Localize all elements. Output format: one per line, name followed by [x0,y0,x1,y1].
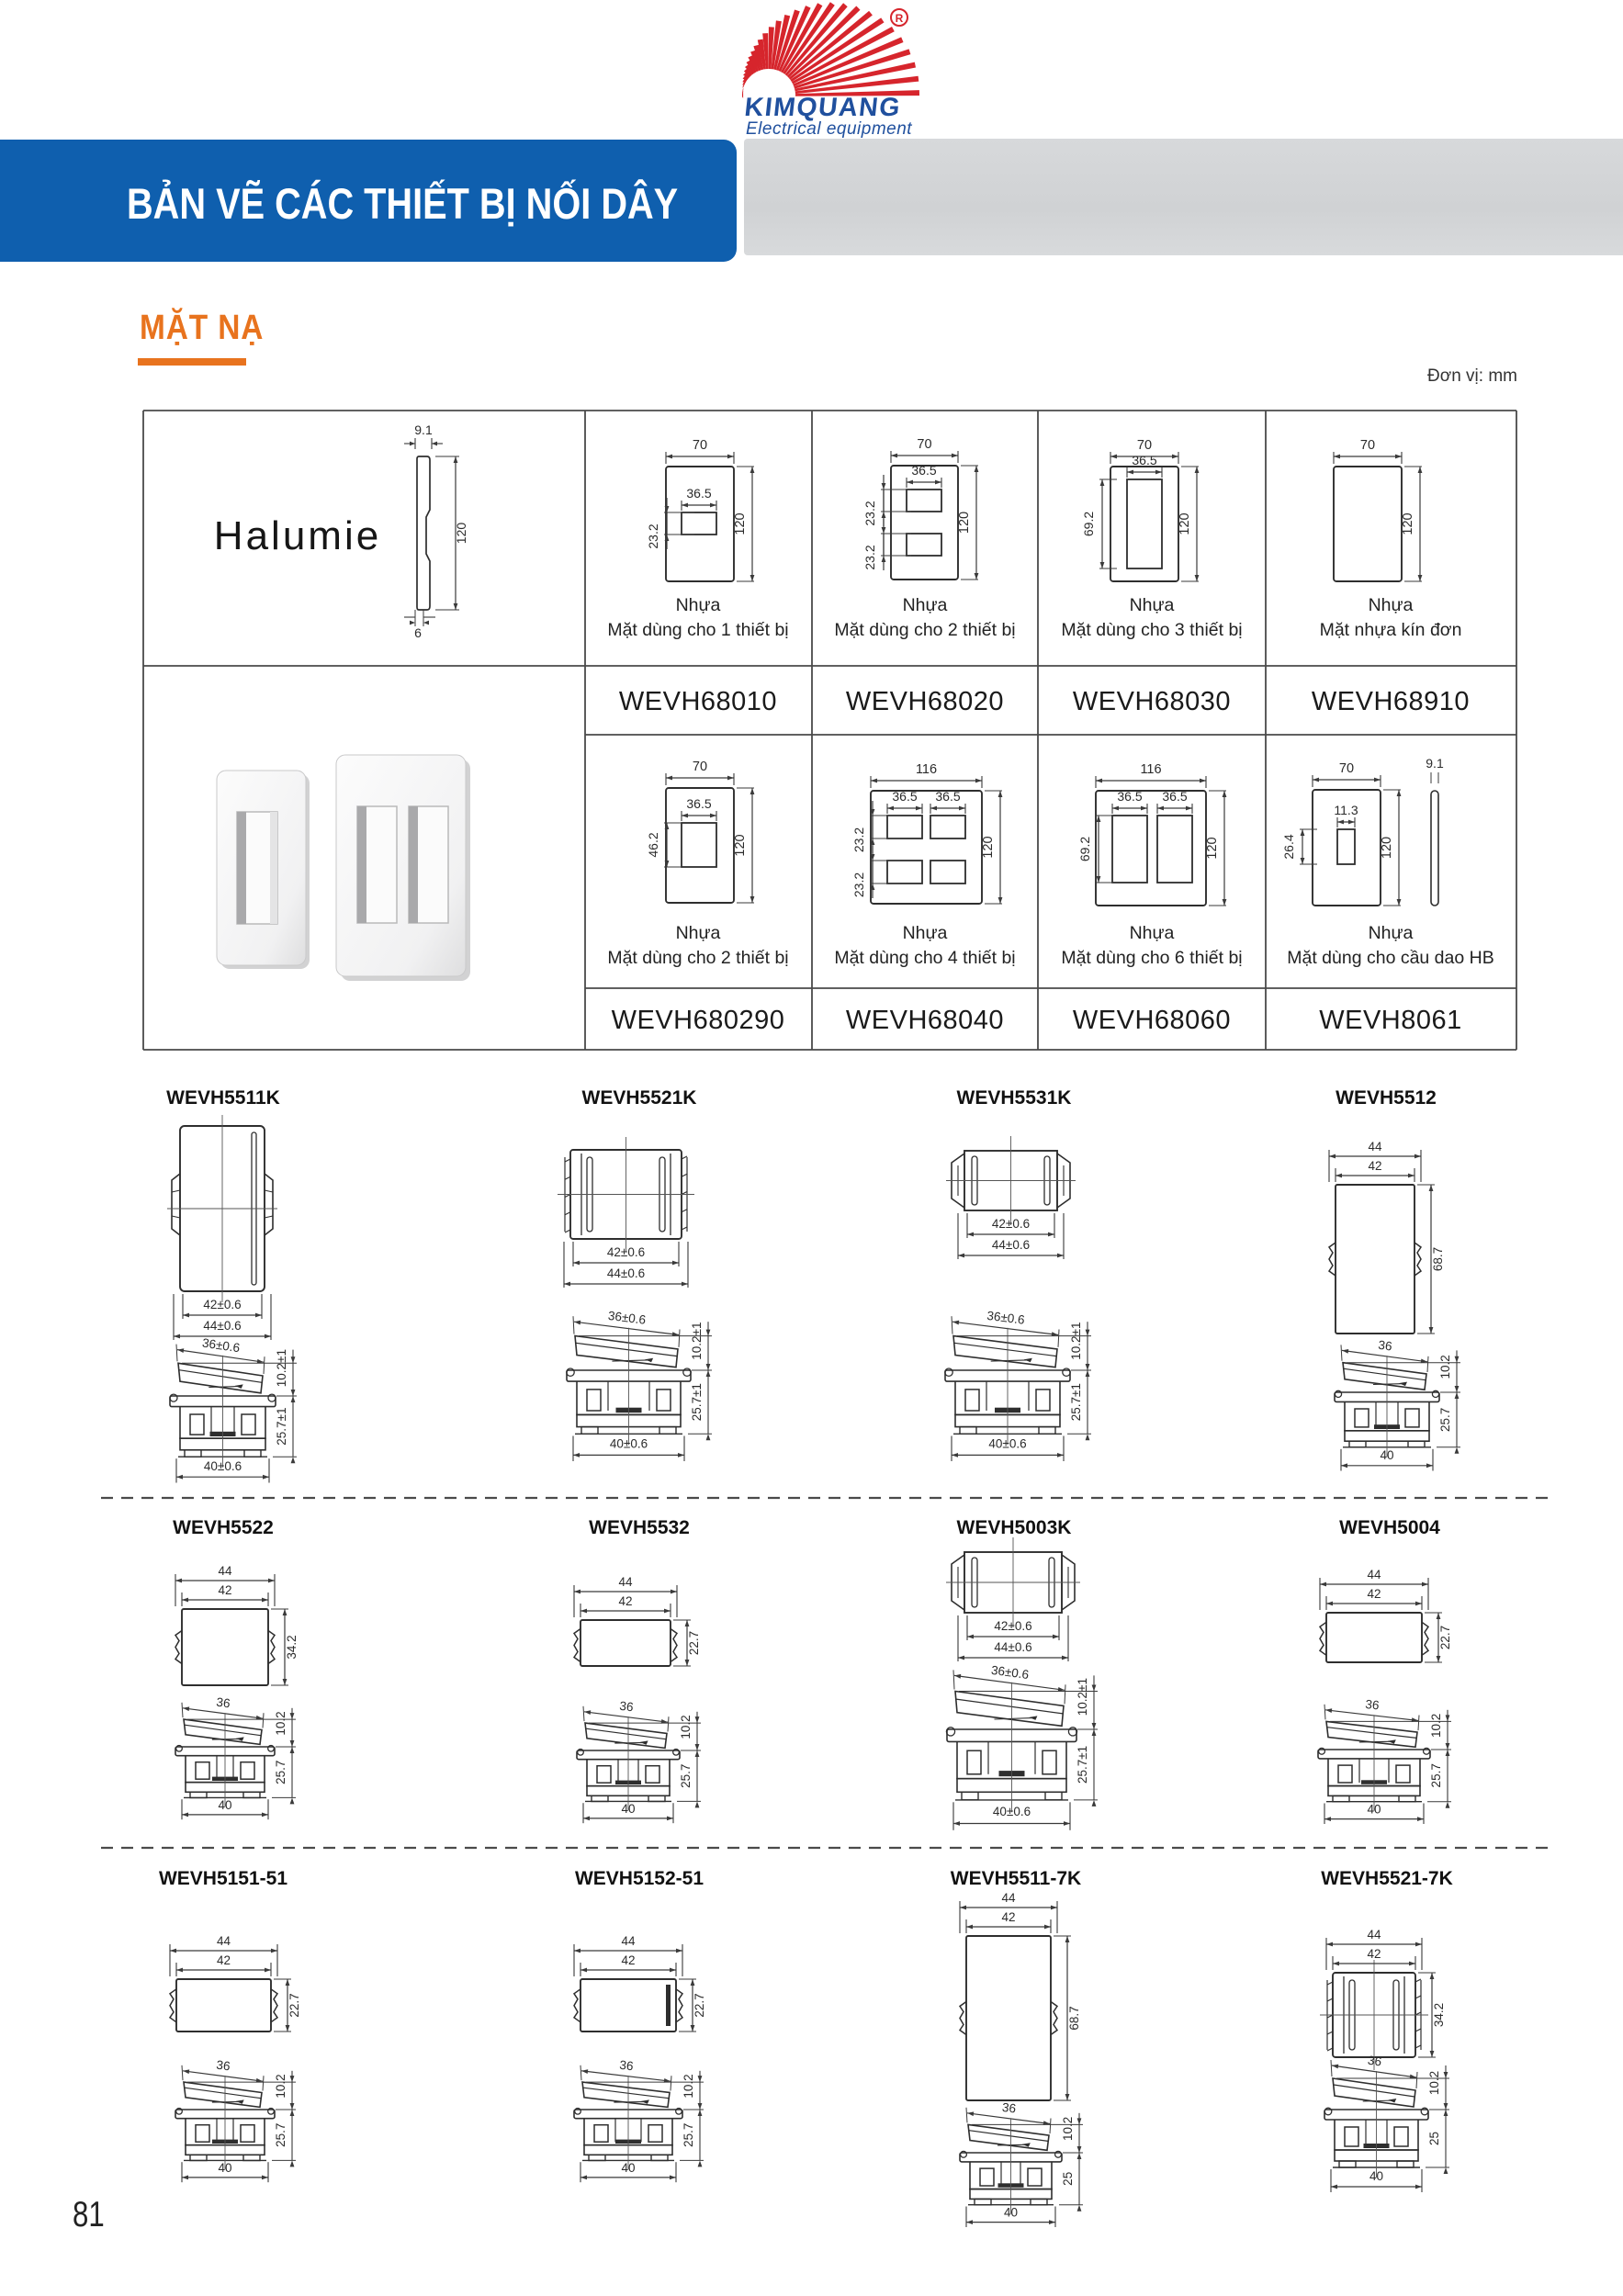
svg-text:70: 70 [917,437,931,452]
svg-text:25: 25 [1427,2132,1441,2145]
svg-text:25.7: 25.7 [679,1764,693,1788]
svg-text:42±0.6: 42±0.6 [607,1245,645,1259]
svg-text:23.2: 23.2 [862,545,877,569]
svg-text:42: 42 [1001,1910,1015,1924]
svg-text:120: 120 [454,523,468,545]
svg-text:9.1: 9.1 [1426,756,1444,771]
svg-text:36: 36 [619,1699,635,1715]
svg-text:25.7: 25.7 [1429,1763,1443,1787]
svg-text:36: 36 [1001,2100,1017,2116]
svg-text:40±0.6: 40±0.6 [204,1459,242,1473]
svg-text:36±0.6: 36±0.6 [201,1336,241,1356]
svg-text:36±0.6: 36±0.6 [607,1309,647,1327]
svg-text:120: 120 [733,512,748,535]
svg-text:9.1: 9.1 [414,422,433,437]
svg-text:10.2±1: 10.2±1 [690,1322,704,1359]
svg-text:25.7±1: 25.7±1 [1076,1746,1089,1784]
svg-text:36.5: 36.5 [892,789,917,804]
svg-text:44: 44 [217,1934,231,1948]
svg-text:10.2: 10.2 [274,1711,287,1735]
svg-text:25: 25 [1061,2172,1075,2186]
svg-text:40: 40 [1380,1448,1393,1462]
svg-text:36±0.6: 36±0.6 [986,1309,1026,1327]
svg-text:10.2: 10.2 [274,2074,287,2098]
svg-text:70: 70 [693,760,707,774]
svg-text:44: 44 [618,1575,633,1589]
svg-text:34.2: 34.2 [285,1635,299,1659]
svg-text:42±0.6: 42±0.6 [992,1217,1030,1231]
svg-text:120: 120 [1178,512,1192,535]
svg-text:40±0.6: 40±0.6 [988,1437,1026,1451]
svg-text:44: 44 [621,1934,636,1948]
svg-text:42: 42 [1367,1947,1381,1961]
svg-text:40: 40 [1367,1802,1381,1816]
svg-text:44: 44 [1001,1891,1016,1905]
svg-text:25.7: 25.7 [274,2123,287,2147]
svg-text:44±0.6: 44±0.6 [992,1238,1030,1252]
svg-text:10.2: 10.2 [1427,2071,1441,2095]
svg-text:40: 40 [218,2161,231,2175]
svg-text:36.5: 36.5 [686,796,711,811]
svg-text:25.7: 25.7 [1438,1408,1452,1432]
svg-text:25.7±1: 25.7±1 [690,1383,704,1421]
svg-text:120: 120 [981,836,996,858]
svg-text:36: 36 [1367,2054,1382,2069]
svg-text:10.2±1: 10.2±1 [1076,1678,1089,1716]
svg-text:120: 120 [733,834,748,856]
svg-text:10.2: 10.2 [1061,2117,1075,2141]
svg-text:40: 40 [1004,2205,1018,2219]
svg-text:44: 44 [1367,1568,1381,1581]
svg-text:22.7: 22.7 [687,1631,701,1655]
svg-text:26.4: 26.4 [1281,834,1296,859]
svg-text:44±0.6: 44±0.6 [607,1266,645,1280]
svg-text:25.7±1: 25.7±1 [275,1407,288,1445]
svg-text:36±0.6: 36±0.6 [990,1663,1030,1682]
svg-text:23.2: 23.2 [646,523,660,548]
svg-text:36: 36 [216,1695,231,1711]
svg-text:25.7: 25.7 [682,2123,695,2147]
svg-text:36: 36 [1365,1697,1381,1713]
svg-text:36.5: 36.5 [911,463,936,478]
svg-text:10.2±1: 10.2±1 [1069,1322,1083,1359]
svg-text:36: 36 [216,2058,231,2074]
svg-text:42: 42 [218,1583,231,1597]
svg-text:42: 42 [1367,1587,1381,1601]
svg-text:68.7: 68.7 [1067,2006,1081,2030]
svg-text:25.7: 25.7 [274,1761,287,1784]
svg-text:120: 120 [1401,512,1415,535]
svg-text:40: 40 [218,1798,231,1812]
svg-text:70: 70 [1360,438,1375,453]
svg-text:36.5: 36.5 [1132,453,1156,467]
svg-text:116: 116 [1140,762,1161,777]
svg-text:6: 6 [414,625,422,640]
svg-text:44±0.6: 44±0.6 [994,1640,1031,1654]
svg-text:120: 120 [957,512,972,534]
svg-text:40: 40 [621,2161,635,2175]
svg-text:36.5: 36.5 [686,486,711,501]
svg-text:46.2: 46.2 [646,832,660,857]
svg-text:44: 44 [1367,1928,1381,1941]
svg-text:120: 120 [1205,837,1220,859]
svg-text:10.2: 10.2 [682,2074,695,2098]
svg-text:69.2: 69.2 [1081,512,1096,536]
svg-text:10.2: 10.2 [1438,1355,1452,1379]
svg-text:44: 44 [218,1564,232,1578]
svg-text:22.7: 22.7 [1438,1626,1452,1649]
svg-text:42: 42 [1368,1159,1381,1173]
svg-text:116: 116 [916,762,937,777]
svg-text:36.5: 36.5 [935,789,960,804]
svg-text:36: 36 [619,2058,635,2074]
svg-text:69.2: 69.2 [1077,837,1092,861]
svg-text:34.2: 34.2 [1432,2003,1446,2027]
svg-text:44: 44 [1368,1140,1382,1154]
svg-text:42: 42 [217,1953,231,1967]
svg-text:40: 40 [621,1802,635,1816]
svg-text:42: 42 [618,1594,632,1608]
svg-text:120: 120 [1380,837,1394,859]
svg-text:42±0.6: 42±0.6 [203,1298,241,1311]
svg-text:23.2: 23.2 [862,501,877,525]
svg-text:10.2±1: 10.2±1 [275,1349,288,1387]
svg-text:36.5: 36.5 [1162,789,1187,804]
svg-text:42±0.6: 42±0.6 [994,1619,1031,1633]
svg-text:70: 70 [1339,761,1354,776]
svg-text:68.7: 68.7 [1431,1247,1445,1271]
svg-text:Halumie: Halumie [214,513,381,558]
svg-text:36.5: 36.5 [1117,789,1142,804]
svg-text:40±0.6: 40±0.6 [610,1437,648,1451]
svg-text:40±0.6: 40±0.6 [993,1805,1031,1818]
svg-text:25.7±1: 25.7±1 [1069,1383,1083,1421]
svg-text:42: 42 [621,1953,635,1967]
svg-text:23.2: 23.2 [851,827,866,852]
svg-text:44±0.6: 44±0.6 [203,1319,241,1333]
svg-text:23.2: 23.2 [851,872,866,897]
svg-text:22.7: 22.7 [693,1993,706,2017]
svg-text:11.3: 11.3 [1334,803,1358,817]
svg-text:10.2: 10.2 [679,1715,693,1739]
svg-text:70: 70 [1137,438,1152,453]
svg-text:10.2: 10.2 [1429,1714,1443,1738]
svg-text:70: 70 [693,438,707,453]
svg-text:22.7: 22.7 [287,1993,301,2017]
svg-text:36: 36 [1378,1338,1393,1354]
svg-text:40: 40 [1369,2169,1383,2183]
